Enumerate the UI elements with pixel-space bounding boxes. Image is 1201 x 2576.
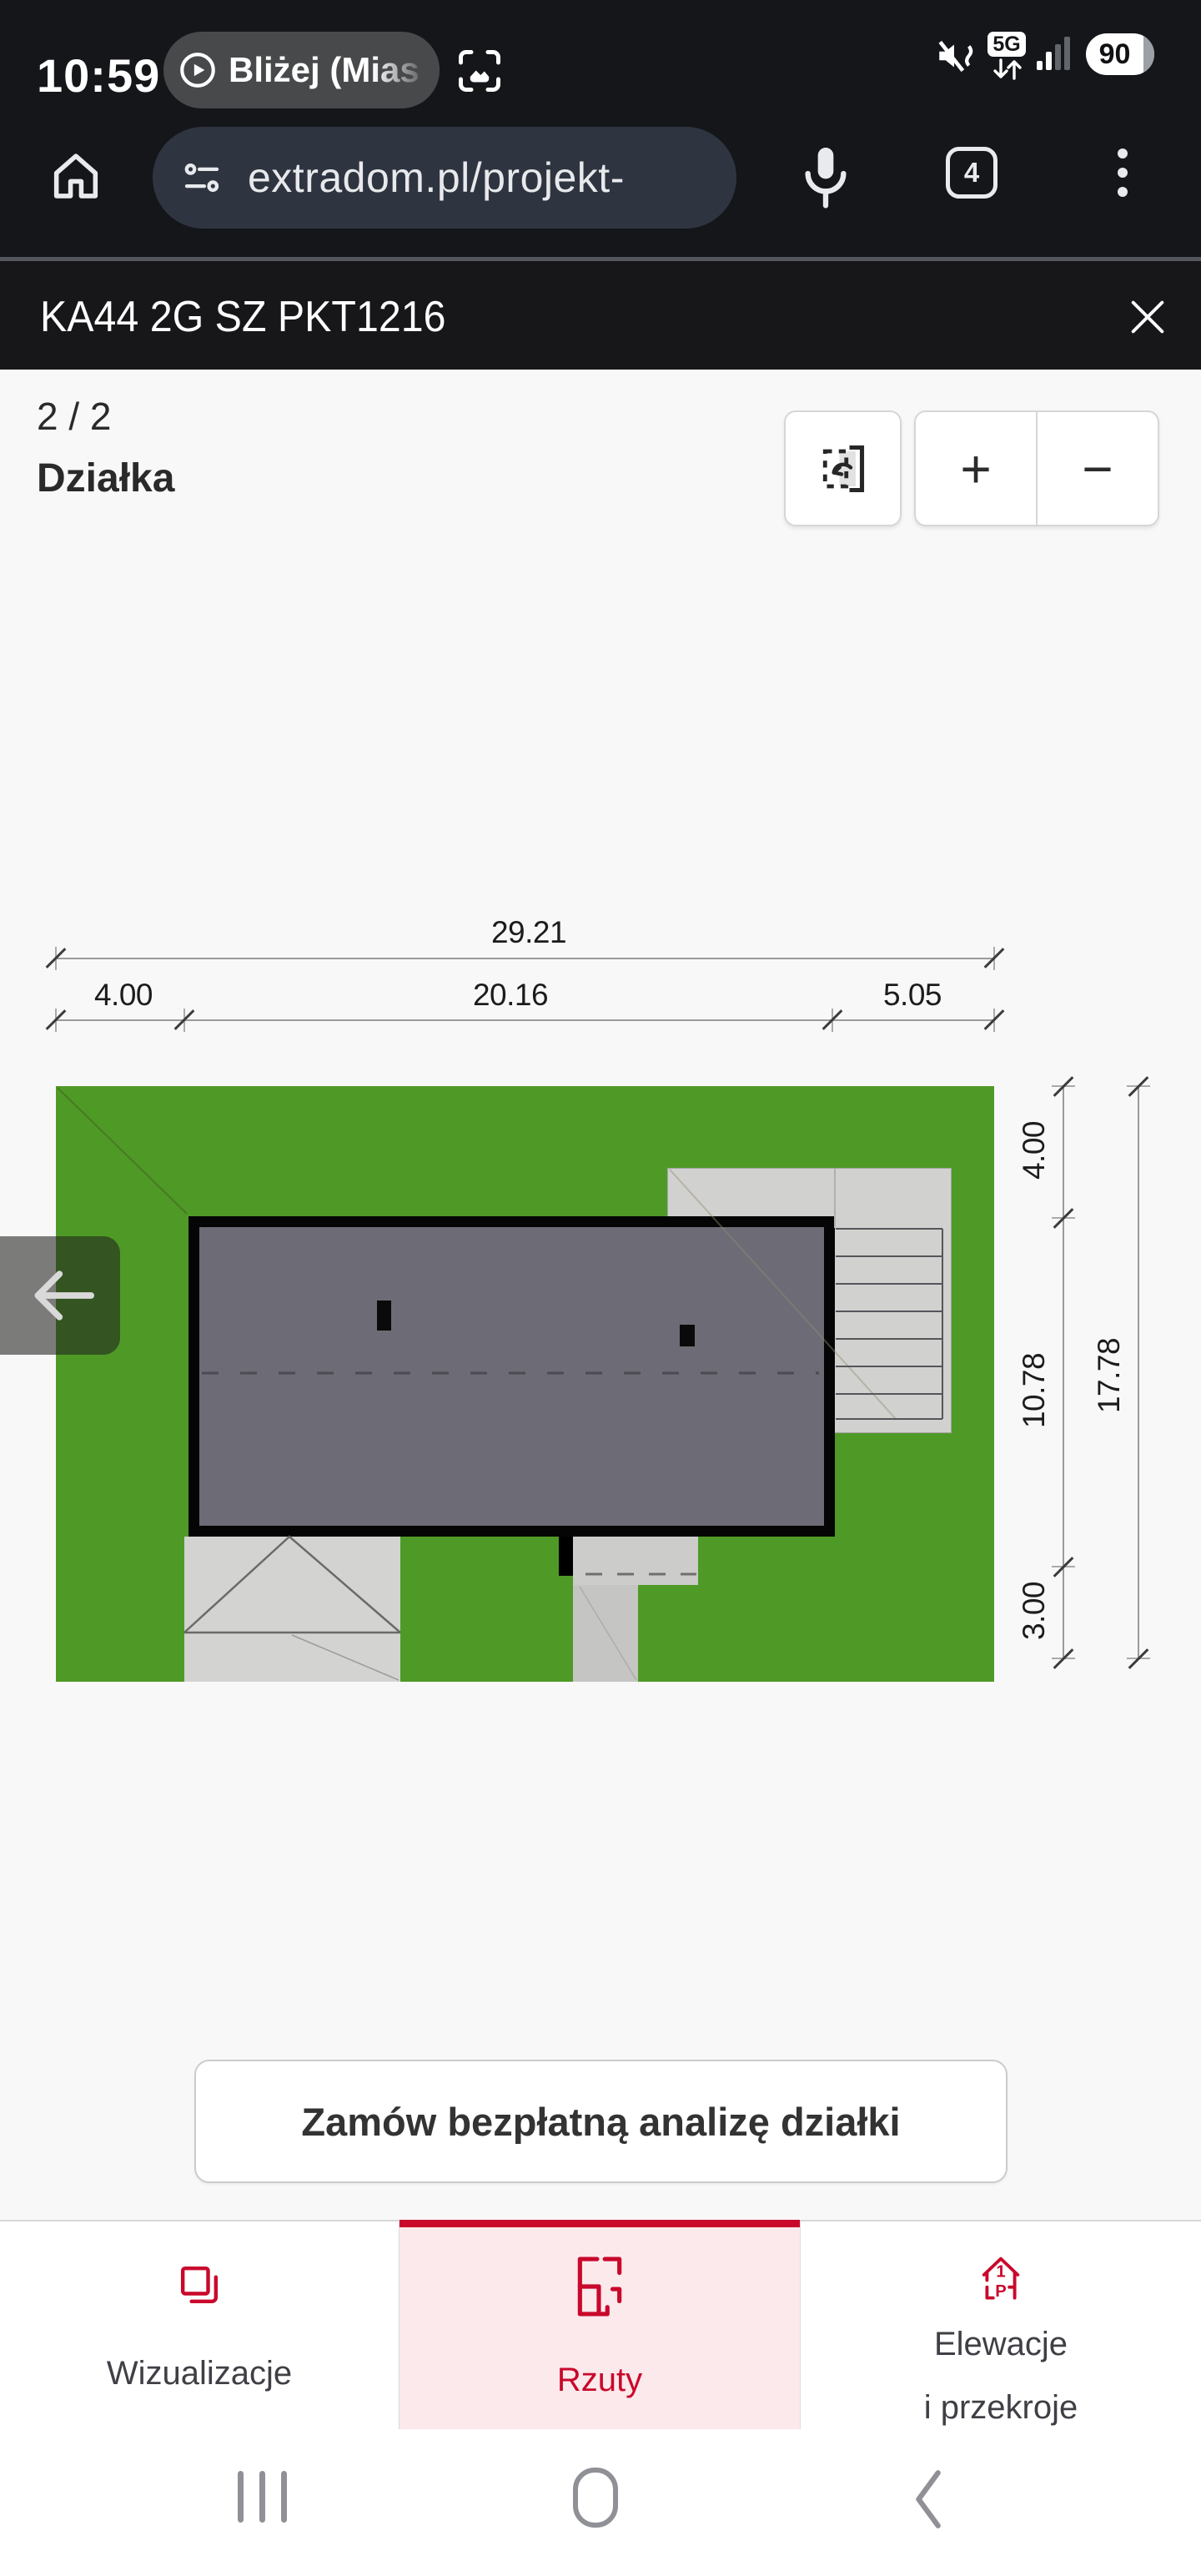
tab-wizualizacje[interactable]: Wizualizacje xyxy=(0,2221,399,2431)
network-5g-badge: 5G xyxy=(987,32,1026,57)
dim-height-seg-1: 4.00 xyxy=(1017,1067,1052,1234)
back-nav-button[interactable] xyxy=(911,2468,944,2531)
site-settings-icon[interactable] xyxy=(179,155,224,200)
view-title: Działka xyxy=(37,455,174,501)
tab-label: Elewacje xyxy=(934,2321,1068,2367)
dim-height-total: 17.78 xyxy=(1092,1292,1127,1459)
battery-percent: 90 xyxy=(1086,33,1143,75)
elevations-icon: 1 P xyxy=(976,2255,1026,2304)
clock: 10:59 xyxy=(37,48,160,103)
dim-width-seg-2: 20.16 xyxy=(427,978,594,1013)
tab-label: Wizualizacje xyxy=(107,2350,292,2397)
dim-height-seg-3: 3.00 xyxy=(1017,1527,1052,1694)
browser-menu-button[interactable] xyxy=(1118,148,1128,200)
play-circle-icon xyxy=(177,49,219,91)
floor-plan-icon xyxy=(576,2257,623,2317)
dim-height-seg-2: 10.78 xyxy=(1017,1307,1052,1474)
zoom-controls: + − xyxy=(914,410,1159,526)
page-indicator: 2 / 2 xyxy=(37,394,112,439)
svg-text:P: P xyxy=(995,2282,1007,2301)
home-nav-button[interactable] xyxy=(573,2468,618,2528)
dim-width-seg-3: 5.05 xyxy=(850,978,975,1013)
android-nav-bar xyxy=(0,2429,1201,2576)
dim-line-height-total xyxy=(1138,1086,1139,1658)
plan-linework xyxy=(56,1086,994,1682)
dim-width-total: 29.21 xyxy=(445,915,612,950)
screen-capture-icon xyxy=(455,46,505,96)
recents-button[interactable] xyxy=(238,2471,289,2523)
battery-indicator: 90 xyxy=(1086,33,1154,75)
tab-count: 4 xyxy=(964,157,979,189)
dim-line-width-total xyxy=(56,958,994,959)
sound-muted-vibrate-icon xyxy=(934,35,976,77)
section-tab-bar: Wizualizacje Rzuty xyxy=(0,2220,1201,2429)
tab-rzuty-active[interactable]: Rzuty xyxy=(399,2221,801,2431)
gallery-back-button[interactable] xyxy=(0,1236,120,1355)
close-icon[interactable] xyxy=(1126,295,1169,339)
site-plan-lawn xyxy=(56,1086,994,1682)
visualizations-icon xyxy=(176,2262,223,2308)
dim-line-width-segments xyxy=(56,1019,994,1021)
order-analysis-button[interactable]: Zamów bezpłatną analizę działki xyxy=(194,2060,1008,2183)
project-title: KA44 2G SZ PKT1216 xyxy=(40,292,446,342)
dim-line-height-segments xyxy=(1063,1086,1064,1658)
tab-switcher-button[interactable]: 4 xyxy=(946,147,997,199)
home-button[interactable] xyxy=(47,147,105,205)
tab-label: Rzuty xyxy=(557,2357,642,2403)
svg-text:1: 1 xyxy=(996,2263,1005,2282)
battery-empty-segment xyxy=(1143,33,1154,75)
zoom-in-button[interactable]: + xyxy=(916,412,1038,525)
pill-fade xyxy=(373,32,440,108)
reset-view-button[interactable] xyxy=(784,410,902,526)
phone-screen: 10:59 Bliżej (Mias 5G xyxy=(0,0,1201,2576)
tab-elewacje[interactable]: 1 P Elewacje i przekroje xyxy=(801,2221,1201,2431)
reset-view-icon xyxy=(816,441,871,496)
url-text[interactable]: extradom.pl/projekt- xyxy=(248,153,625,202)
voice-search-icon[interactable] xyxy=(792,140,859,215)
signal-strength-icon xyxy=(1037,37,1070,70)
media-notification-pill[interactable]: Bliżej (Mias xyxy=(163,32,440,108)
tab-label-line2: i przekroje xyxy=(924,2384,1078,2431)
url-bar[interactable]: extradom.pl/projekt- xyxy=(153,127,736,229)
data-updown-arrows-icon xyxy=(991,58,1024,80)
arrow-left-icon xyxy=(25,1255,97,1336)
dim-width-seg-1: 4.00 xyxy=(61,978,186,1013)
active-tab-indicator xyxy=(399,2220,800,2227)
zoom-out-button[interactable]: − xyxy=(1038,412,1158,525)
